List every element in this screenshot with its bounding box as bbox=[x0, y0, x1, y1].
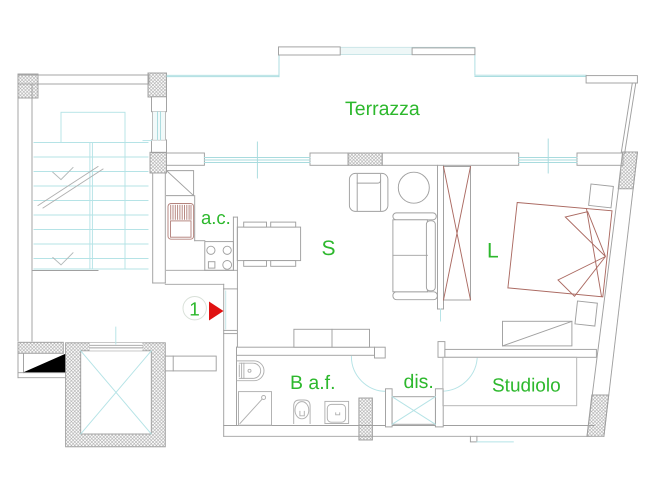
svg-text:S: S bbox=[322, 237, 336, 260]
svg-text:dis.: dis. bbox=[404, 371, 434, 393]
svg-text:Terrazza: Terrazza bbox=[345, 98, 420, 120]
svg-text:L: L bbox=[487, 240, 499, 263]
svg-text:B a.f.: B a.f. bbox=[290, 372, 336, 394]
svg-text:a.c.: a.c. bbox=[201, 207, 231, 228]
svg-text:1: 1 bbox=[189, 300, 200, 321]
svg-text:Studiolo: Studiolo bbox=[492, 376, 561, 397]
